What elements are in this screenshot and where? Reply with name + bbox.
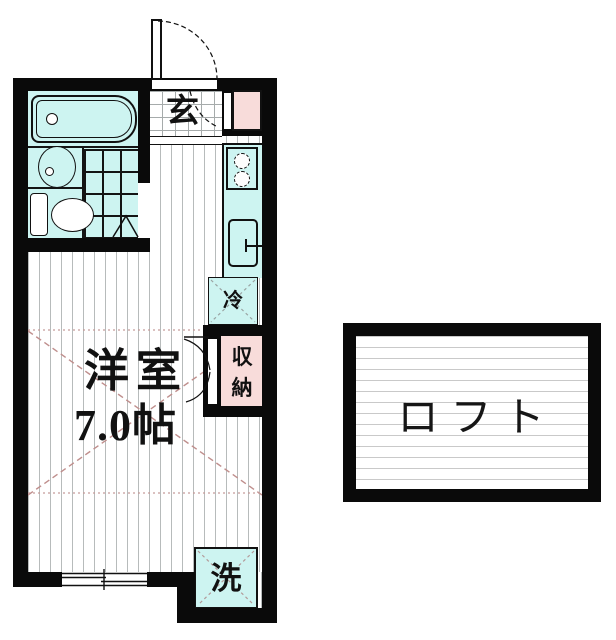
basin-faucet bbox=[45, 167, 54, 176]
entrance-label: 玄 bbox=[166, 96, 199, 129]
stove-burner bbox=[234, 153, 250, 169]
toilet-tank bbox=[30, 193, 48, 236]
shoe-cabinet bbox=[232, 90, 262, 131]
loft-floor: ロフト bbox=[356, 336, 588, 489]
entry-door-opening bbox=[152, 80, 217, 89]
window bbox=[62, 572, 147, 587]
loft-label: ロフト bbox=[388, 383, 557, 443]
bathroom-tile-floor bbox=[84, 149, 138, 238]
stove-burner bbox=[234, 171, 250, 187]
kitchen-sink bbox=[228, 219, 258, 267]
room-name-label: 洋室 bbox=[84, 349, 188, 394]
room-size-label: 7.0帖 bbox=[74, 404, 177, 448]
wall-bottom-right bbox=[177, 608, 277, 623]
front-door-leaf bbox=[152, 20, 161, 79]
storage-door-opening bbox=[208, 339, 217, 404]
bathroom-door-opening bbox=[138, 183, 150, 238]
wash-basin bbox=[38, 146, 76, 188]
loft: ロフト bbox=[343, 323, 601, 502]
refrigerator-label: 冷 bbox=[208, 277, 258, 325]
floor-plan: 玄 洋室 7.0帖 冷 収納 洗 ロフト bbox=[0, 0, 616, 640]
entrance-step bbox=[149, 136, 222, 145]
storage-label: 収納 bbox=[230, 342, 254, 404]
bathroom-bottom-wall bbox=[13, 238, 150, 252]
bathtub-drain bbox=[46, 113, 58, 125]
front-door-arc bbox=[158, 21, 217, 79]
toilet-bowl bbox=[51, 198, 94, 232]
washer-label: 洗 bbox=[194, 547, 258, 609]
bathroom-right-wall bbox=[138, 91, 150, 183]
entry-side-slit bbox=[224, 93, 231, 129]
wall-left bbox=[13, 78, 28, 587]
